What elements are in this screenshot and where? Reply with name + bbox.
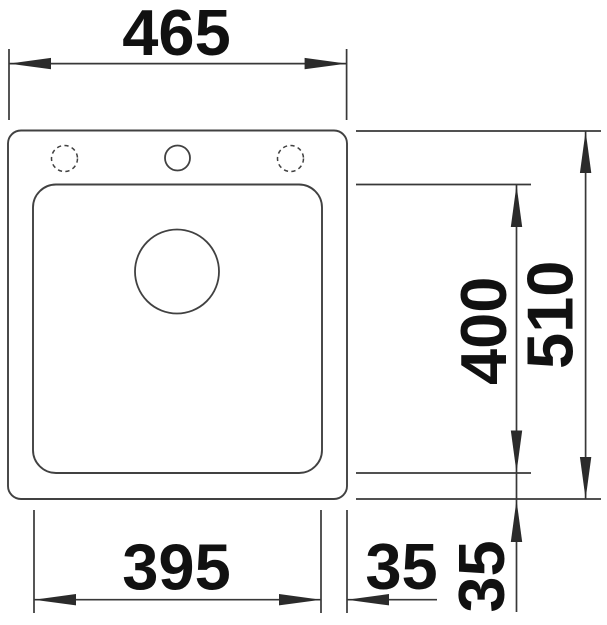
svg-text:35: 35	[365, 530, 437, 603]
svg-text:35: 35	[445, 540, 518, 612]
svg-text:395: 395	[122, 530, 230, 603]
svg-text:465: 465	[122, 0, 230, 69]
svg-text:510: 510	[514, 261, 587, 369]
svg-text:400: 400	[447, 277, 520, 385]
